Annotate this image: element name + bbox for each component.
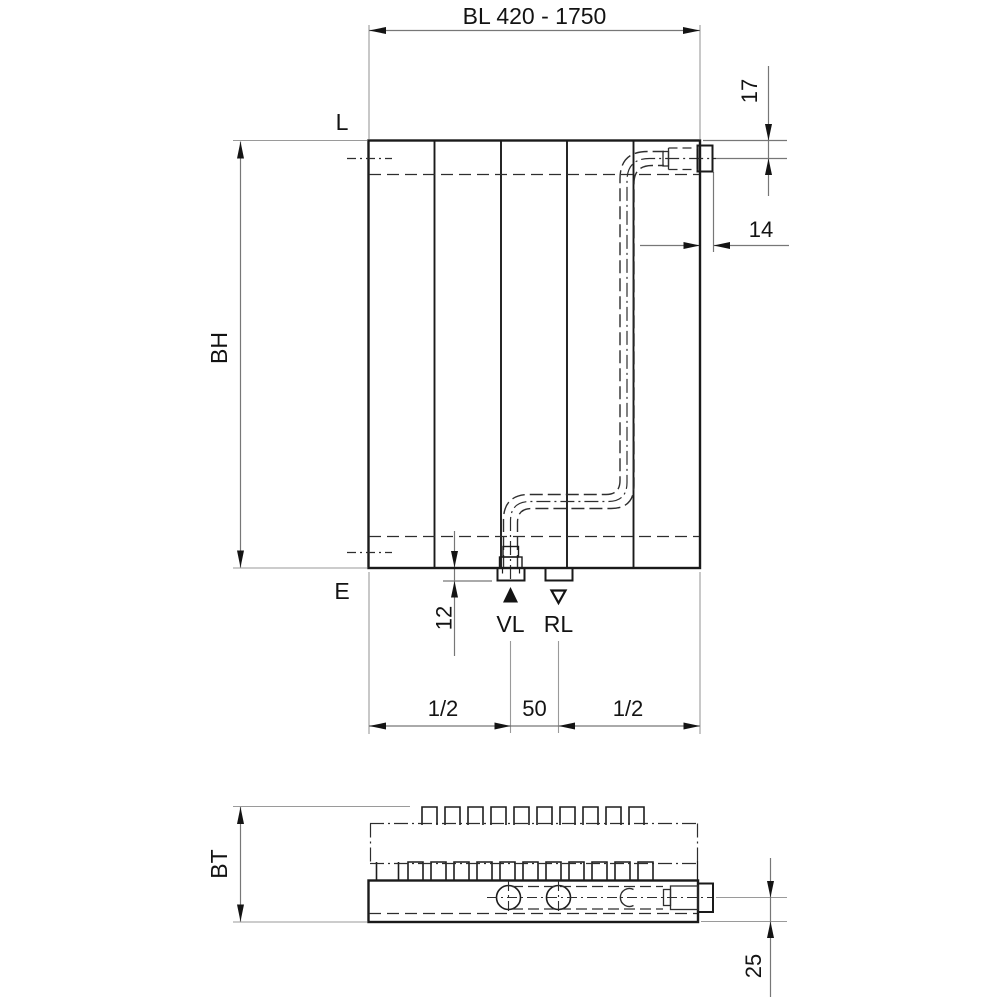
radiator-body xyxy=(347,141,700,569)
dimension-arrow xyxy=(767,881,774,898)
overall-height-dim-label: BH xyxy=(206,332,232,364)
dimension-arrow xyxy=(369,27,386,34)
right-half-spacing-dim-label: 1/2 xyxy=(613,696,644,721)
dimension-arrow xyxy=(683,27,700,34)
dimension-arrow xyxy=(495,723,512,730)
radiator-body-outline xyxy=(369,141,701,569)
pipe-outline-outer xyxy=(504,152,665,569)
return-connection-label: RL xyxy=(544,611,574,637)
connection-spacing-dim-label: 50 xyxy=(522,696,546,721)
dimension-arrow xyxy=(767,922,774,939)
dimension-arrow xyxy=(765,159,772,176)
overall-width-dim-label: BL 420 - 1750 xyxy=(463,3,607,29)
dimension-arrow xyxy=(237,905,244,922)
side-connection-depth-dim-label: 14 xyxy=(749,217,773,242)
rear-pipe-offset-dim-label: 25 xyxy=(741,954,766,978)
depth-dim-label: BT xyxy=(206,849,232,878)
bottom-edge-label: E xyxy=(334,578,349,604)
dimension-arrow xyxy=(451,551,458,568)
extension-lines-front xyxy=(233,25,700,734)
dimension-lines-bottom xyxy=(241,807,771,997)
front-view: BL 420 - 1750 L E BH 17 14 12 VL RL 1/2 … xyxy=(206,3,789,734)
fin-row-lower xyxy=(408,862,653,880)
panel-separator-lines xyxy=(435,141,634,569)
dimension-arrow xyxy=(237,142,244,159)
supply-connection-label: VL xyxy=(496,611,524,637)
left-half-spacing-dim-label: 1/2 xyxy=(428,696,459,721)
return-triangle-icon xyxy=(552,591,566,604)
internal-pipe xyxy=(500,152,717,580)
dimension-arrows-bottom xyxy=(237,807,774,938)
stub-protrusion-dim-label: 12 xyxy=(432,606,457,630)
convector-fins xyxy=(377,807,698,880)
pipe-outline-inner xyxy=(518,166,665,569)
return-stub xyxy=(546,568,573,581)
dimension-arrow xyxy=(765,124,772,141)
dimension-arrow xyxy=(451,581,458,598)
drawing-page: BL 420 - 1750 L E BH 17 14 12 VL RL 1/2 … xyxy=(0,0,1000,1000)
connection-stubs xyxy=(498,568,573,581)
top-edge-label: L xyxy=(336,109,349,135)
bottom-view: BT 25 xyxy=(206,807,787,998)
radiator-dimension-drawing: BL 420 - 1750 L E BH 17 14 12 VL RL 1/2 … xyxy=(0,0,1000,1000)
supply-triangle-icon xyxy=(503,587,518,603)
dimension-arrow xyxy=(714,242,731,249)
dimension-arrow xyxy=(684,723,701,730)
top-connection-offset-dim-label: 17 xyxy=(737,79,762,103)
dimension-arrow xyxy=(237,807,244,824)
dimension-arrow xyxy=(369,723,386,730)
dimension-arrow xyxy=(237,551,244,568)
fin-row-upper xyxy=(422,807,644,825)
dimension-arrow xyxy=(684,242,701,249)
hidden-channel-lines xyxy=(369,175,699,537)
pipe-centerline xyxy=(511,159,717,580)
dimension-arrow xyxy=(559,723,576,730)
fin-centerlines xyxy=(370,824,698,864)
